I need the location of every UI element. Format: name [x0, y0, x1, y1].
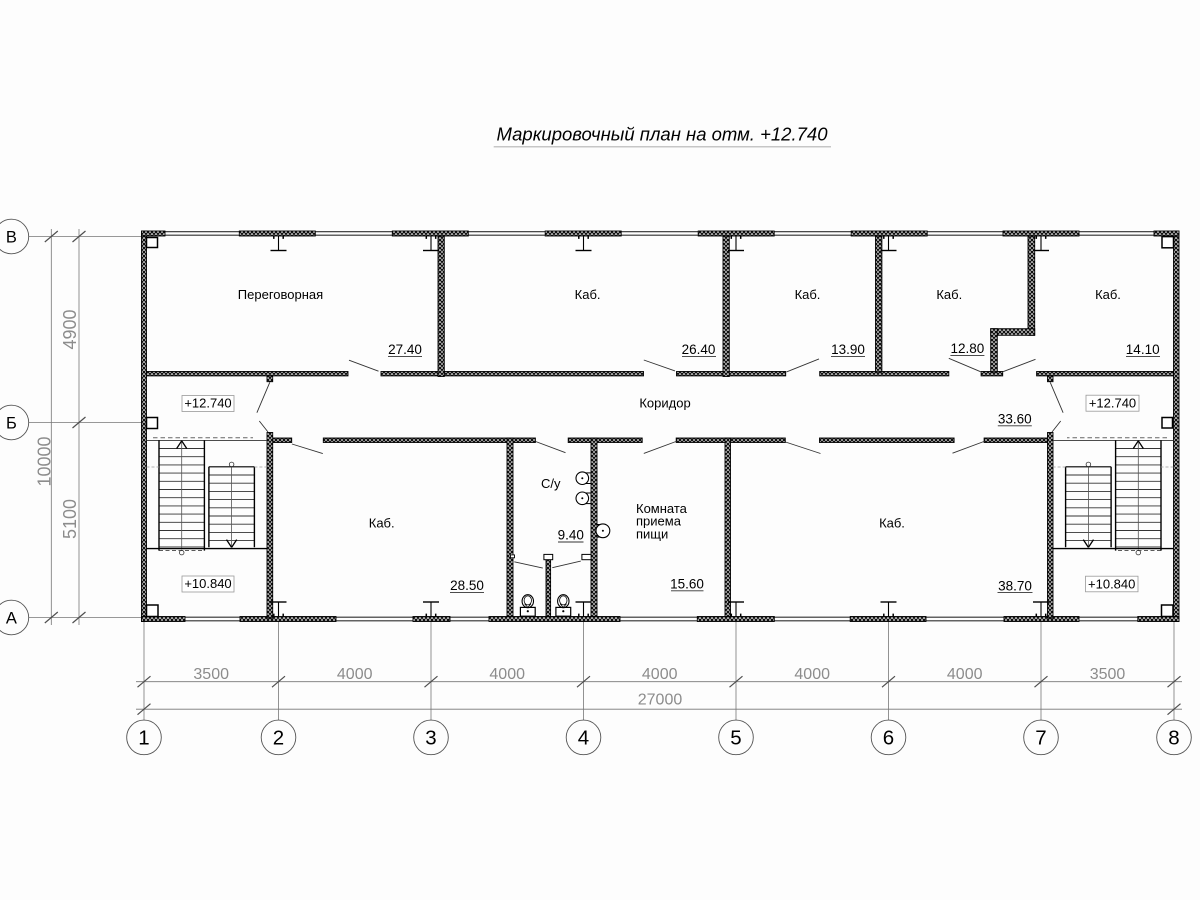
svg-text:Каб.: Каб.: [1095, 287, 1121, 302]
svg-text:Каб.: Каб.: [936, 287, 962, 302]
svg-text:пищи: пищи: [636, 526, 668, 541]
svg-text:27.40: 27.40: [388, 342, 422, 357]
svg-text:27000: 27000: [638, 692, 683, 709]
svg-text:4900: 4900: [60, 309, 80, 349]
svg-text:13.90: 13.90: [831, 342, 865, 357]
svg-text:8: 8: [1168, 727, 1179, 750]
svg-text:33.60: 33.60: [998, 411, 1032, 426]
svg-text:4000: 4000: [489, 666, 525, 683]
svg-text:В: В: [6, 229, 17, 247]
svg-text:14.10: 14.10: [1126, 342, 1160, 357]
svg-text:4000: 4000: [947, 666, 983, 683]
svg-text:38.70: 38.70: [998, 578, 1032, 593]
svg-text:1: 1: [138, 727, 149, 750]
svg-text:5100: 5100: [60, 499, 80, 539]
svg-text:5: 5: [730, 727, 741, 750]
svg-text:7: 7: [1035, 727, 1046, 750]
svg-text:+10.840: +10.840: [1088, 576, 1135, 591]
svg-text:12.80: 12.80: [951, 341, 985, 356]
svg-text:+10.840: +10.840: [184, 576, 231, 591]
svg-text:4000: 4000: [642, 666, 678, 683]
svg-text:3: 3: [425, 727, 436, 750]
svg-text:10000: 10000: [35, 436, 55, 486]
svg-text:С/у: С/у: [541, 476, 561, 491]
svg-text:4: 4: [578, 727, 589, 750]
svg-text:Каб.: Каб.: [795, 287, 821, 302]
svg-text:6: 6: [883, 727, 894, 750]
svg-text:28.50: 28.50: [450, 578, 484, 593]
svg-text:3500: 3500: [1090, 666, 1126, 683]
svg-text:26.40: 26.40: [682, 342, 716, 357]
svg-text:15.60: 15.60: [670, 576, 704, 591]
svg-text:+12.740: +12.740: [184, 396, 231, 411]
svg-text:+12.740: +12.740: [1089, 395, 1136, 410]
svg-text:Каб.: Каб.: [369, 516, 395, 531]
svg-text:Каб.: Каб.: [575, 287, 601, 302]
svg-text:Маркировочный план на отм. +12: Маркировочный план на отм. +12.740: [497, 124, 829, 145]
svg-text:А: А: [6, 610, 17, 628]
svg-text:Переговорная: Переговорная: [238, 287, 323, 302]
svg-text:Каб.: Каб.: [879, 516, 905, 531]
svg-text:4000: 4000: [794, 666, 830, 683]
svg-text:Коридор: Коридор: [639, 396, 690, 411]
svg-text:4000: 4000: [337, 666, 373, 683]
svg-text:9.40: 9.40: [558, 528, 584, 543]
svg-text:2: 2: [273, 727, 284, 750]
svg-text:3500: 3500: [193, 666, 229, 683]
svg-text:Б: Б: [6, 415, 17, 433]
